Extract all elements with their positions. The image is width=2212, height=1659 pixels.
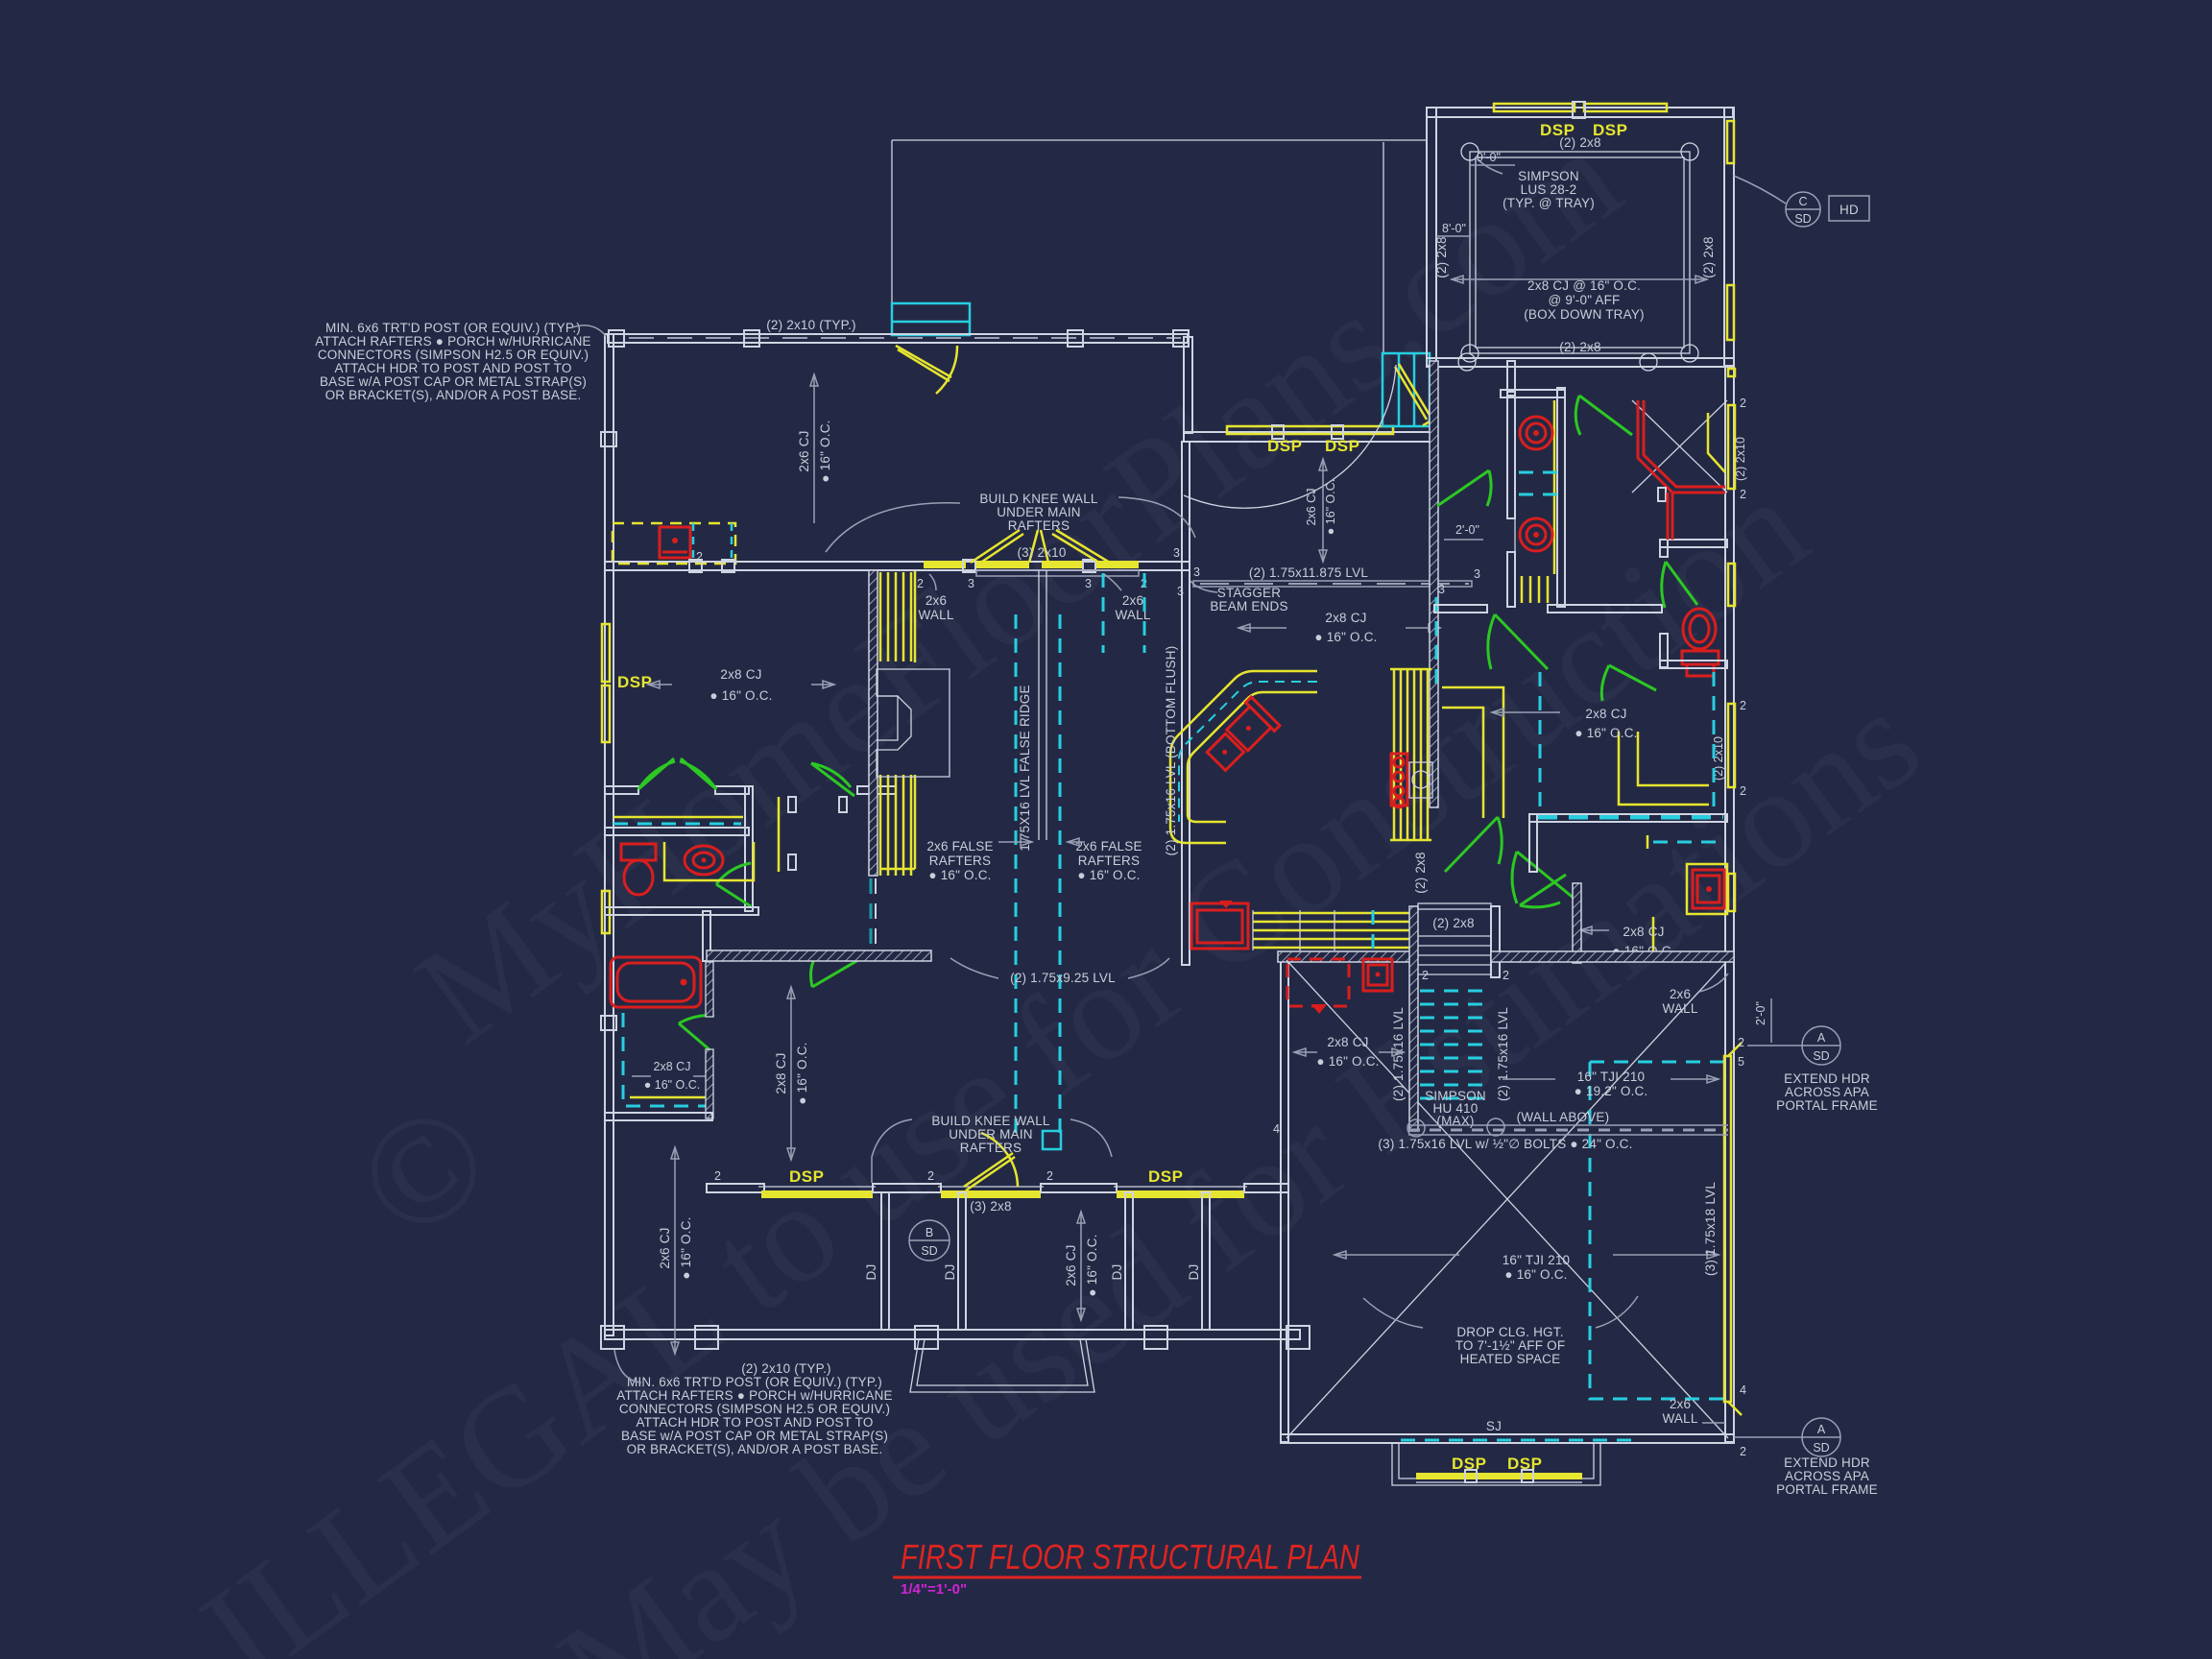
- svg-text:2x6 CJ: 2x6 CJ: [1064, 1244, 1078, 1286]
- svg-text:(2) 1.75x9.25 LVL: (2) 1.75x9.25 LVL: [1010, 971, 1116, 985]
- svg-text:CONNECTORS (SIMPSON H2.5 OR EQ: CONNECTORS (SIMPSON H2.5 OR EQUIV.): [318, 348, 589, 362]
- svg-text:DSP: DSP: [1148, 1167, 1183, 1186]
- svg-text:DSP: DSP: [1325, 437, 1359, 455]
- svg-text:UNDER MAIN: UNDER MAIN: [997, 505, 1081, 519]
- svg-text:(3) 1.75x18 LVL: (3) 1.75x18 LVL: [1703, 1182, 1718, 1276]
- svg-text:● 16" O.C.: ● 16" O.C.: [644, 1078, 701, 1092]
- svg-text:(2) 1.75x11.875 LVL: (2) 1.75x11.875 LVL: [1249, 565, 1368, 580]
- svg-text:(2) 2x8: (2) 2x8: [1413, 852, 1428, 893]
- svg-text:DSP: DSP: [789, 1167, 824, 1186]
- svg-text:2x8 CJ: 2x8 CJ: [720, 667, 761, 682]
- svg-text:3: 3: [1193, 565, 1200, 579]
- svg-text:A: A: [1817, 1423, 1826, 1436]
- svg-text:(3) 2x10: (3) 2x10: [1017, 545, 1066, 560]
- svg-text:BASE w/A POST CAP OR METAL STR: BASE w/A POST CAP OR METAL STRAP(S): [320, 374, 587, 389]
- svg-text:(2) 2x8: (2) 2x8: [1432, 916, 1474, 930]
- svg-text:(2) 1.75x16 LVL: (2) 1.75x16 LVL: [1496, 1007, 1510, 1101]
- svg-text:OR BRACKET(S), AND/OR A POST B: OR BRACKET(S), AND/OR A POST BASE.: [627, 1442, 883, 1456]
- svg-text:● 16" O.C.: ● 16" O.C.: [679, 1216, 693, 1279]
- svg-text:DJ: DJ: [1187, 1264, 1201, 1281]
- svg-text:2: 2: [714, 1169, 721, 1183]
- svg-text:FIRST FLOOR STRUCTURAL PLAN: FIRST FLOOR STRUCTURAL PLAN: [901, 1537, 1360, 1576]
- svg-text:STAGGER: STAGGER: [1217, 586, 1281, 600]
- svg-text:WALL: WALL: [918, 608, 953, 622]
- svg-text:TO 7'-1½" AFF OF: TO 7'-1½" AFF OF: [1455, 1338, 1566, 1353]
- svg-text:2: 2: [1740, 397, 1746, 410]
- svg-text:BASE w/A POST CAP OR METAL STR: BASE w/A POST CAP OR METAL STRAP(S): [621, 1429, 888, 1443]
- svg-text:● 16" O.C.: ● 16" O.C.: [818, 420, 832, 482]
- svg-text:● 16" O.C.: ● 16" O.C.: [1324, 479, 1337, 536]
- svg-text:(2) 2x10: (2) 2x10: [1734, 437, 1747, 481]
- svg-text:DJ: DJ: [943, 1264, 957, 1281]
- svg-text:2x6 FALSE: 2x6 FALSE: [926, 839, 993, 854]
- svg-text:2: 2: [927, 1169, 934, 1183]
- svg-text:OR BRACKET(S), AND/OR A POST B: OR BRACKET(S), AND/OR A POST BASE.: [325, 388, 582, 402]
- svg-text:3: 3: [1474, 567, 1480, 581]
- svg-text:2x6 FALSE: 2x6 FALSE: [1075, 839, 1142, 854]
- svg-text:WALL: WALL: [1662, 1411, 1697, 1426]
- svg-text:3: 3: [1173, 546, 1180, 560]
- svg-text:BUILD KNEE WALL: BUILD KNEE WALL: [931, 1114, 1050, 1128]
- svg-text:(2) 2x10 (TYP.): (2) 2x10 (TYP.): [741, 1361, 831, 1376]
- svg-text:A: A: [1817, 1031, 1826, 1045]
- svg-text:2x8 CJ: 2x8 CJ: [774, 1052, 788, 1094]
- svg-text:16" TJI 210: 16" TJI 210: [1503, 1253, 1571, 1267]
- svg-text:EXTEND HDR: EXTEND HDR: [1784, 1455, 1870, 1470]
- svg-text:4: 4: [1740, 1383, 1746, 1397]
- svg-text:4: 4: [1273, 1122, 1280, 1136]
- svg-text:UNDER MAIN: UNDER MAIN: [949, 1127, 1033, 1142]
- svg-text:HEATED SPACE: HEATED SPACE: [1460, 1352, 1561, 1366]
- svg-text:2x8 CJ: 2x8 CJ: [1327, 1035, 1368, 1049]
- svg-text:2x8 CJ: 2x8 CJ: [1585, 707, 1626, 721]
- svg-text:● 16" O.C.: ● 16" O.C.: [1314, 630, 1377, 644]
- svg-text:9'-0": 9'-0": [1477, 151, 1501, 164]
- svg-text:WALL: WALL: [1662, 1001, 1697, 1016]
- svg-text:2'-0": 2'-0": [1455, 523, 1479, 537]
- svg-text:LUS 28-2: LUS 28-2: [1521, 182, 1577, 197]
- svg-text:DSP: DSP: [1507, 1455, 1542, 1473]
- svg-text:3: 3: [1438, 583, 1445, 596]
- svg-text:● 16" O.C.: ● 16" O.C.: [928, 868, 991, 882]
- svg-text:BEAM ENDS: BEAM ENDS: [1210, 599, 1287, 613]
- svg-text:RAFTERS: RAFTERS: [1078, 854, 1140, 868]
- svg-text:2: 2: [1046, 1169, 1053, 1183]
- svg-text:(2) 2x8: (2) 2x8: [1559, 340, 1600, 354]
- svg-text:HD: HD: [1839, 203, 1859, 217]
- svg-text:SD: SD: [921, 1244, 937, 1258]
- svg-text:EXTEND HDR: EXTEND HDR: [1784, 1071, 1870, 1086]
- svg-text:● 16" O.C.: ● 16" O.C.: [1504, 1267, 1567, 1282]
- svg-text:RAFTERS: RAFTERS: [929, 854, 991, 868]
- svg-text:RAFTERS: RAFTERS: [960, 1141, 1022, 1155]
- svg-text:● 16" O.C.: ● 16" O.C.: [1077, 868, 1140, 882]
- svg-text:(BOX DOWN TRAY): (BOX DOWN TRAY): [1524, 307, 1645, 322]
- svg-text:1/4"=1'-0": 1/4"=1'-0": [901, 1581, 967, 1598]
- svg-text:(3) 1.75x16 LVL w/ ½"∅ BOLTS ●: (3) 1.75x16 LVL w/ ½"∅ BOLTS ● 24" O.C.: [1378, 1137, 1632, 1151]
- svg-text:2: 2: [1740, 488, 1746, 501]
- svg-text:DSP: DSP: [617, 673, 652, 691]
- svg-text:DROP CLG. HGT.: DROP CLG. HGT.: [1456, 1325, 1563, 1339]
- svg-text:2x6 CJ: 2x6 CJ: [797, 430, 811, 471]
- svg-text:2'-0": 2'-0": [1754, 1001, 1767, 1025]
- svg-text:2x6: 2x6: [926, 593, 947, 608]
- svg-text:2: 2: [1738, 1036, 1744, 1049]
- svg-text:16" TJI 210: 16" TJI 210: [1577, 1070, 1646, 1084]
- svg-text:2: 2: [1503, 969, 1509, 982]
- svg-text:(WALL ABOVE): (WALL ABOVE): [1517, 1110, 1610, 1124]
- svg-text:ATTACH HDR TO POST AND POST TO: ATTACH HDR TO POST AND POST TO: [334, 361, 571, 375]
- svg-text:MIN. 6x6 TRT'D POST (OR EQUIV.: MIN. 6x6 TRT'D POST (OR EQUIV.) (TYP.): [627, 1375, 882, 1389]
- svg-text:ACROSS APA: ACROSS APA: [1785, 1085, 1869, 1099]
- svg-text:ACROSS APA: ACROSS APA: [1785, 1469, 1869, 1483]
- svg-text:3: 3: [1177, 585, 1184, 598]
- svg-text:SD: SD: [1813, 1441, 1829, 1455]
- svg-text:● 16" O.C.: ● 16" O.C.: [795, 1042, 809, 1104]
- svg-text:SJ: SJ: [1486, 1419, 1502, 1433]
- svg-text:2: 2: [1740, 699, 1746, 712]
- svg-text:B: B: [926, 1226, 933, 1239]
- svg-text:2x6 CJ: 2x6 CJ: [1305, 489, 1318, 526]
- svg-text:(2) 2x10 (TYP.): (2) 2x10 (TYP.): [766, 318, 856, 332]
- svg-text:1.75X16 LVL FALSE RIDGE: 1.75X16 LVL FALSE RIDGE: [1018, 685, 1032, 851]
- svg-text:(2) 2x8: (2) 2x8: [1701, 236, 1716, 277]
- svg-text:2: 2: [1740, 784, 1746, 798]
- svg-text:(2) 2x8: (2) 2x8: [1559, 135, 1600, 150]
- svg-text:DJ: DJ: [1110, 1264, 1124, 1281]
- svg-text:ATTACH RAFTERS ● PORCH w/HURRI: ATTACH RAFTERS ● PORCH w/HURRICANE: [616, 1388, 892, 1403]
- svg-text:3: 3: [968, 577, 974, 590]
- svg-text:3: 3: [1085, 577, 1092, 590]
- svg-text:2x6: 2x6: [1670, 987, 1691, 1001]
- svg-text:2x6: 2x6: [1670, 1397, 1691, 1411]
- svg-text:(TYP. @ TRAY): (TYP. @ TRAY): [1503, 196, 1595, 210]
- svg-text:ATTACH HDR TO POST AND POST TO: ATTACH HDR TO POST AND POST TO: [636, 1415, 873, 1430]
- svg-text:BUILD KNEE WALL: BUILD KNEE WALL: [979, 492, 1098, 506]
- svg-text:2x8 CJ: 2x8 CJ: [1325, 611, 1366, 625]
- svg-text:2x6 CJ: 2x6 CJ: [658, 1227, 672, 1268]
- svg-text:● 16" O.C.: ● 16" O.C.: [709, 688, 772, 703]
- svg-text:(3) 2x8: (3) 2x8: [970, 1199, 1011, 1214]
- svg-text:ATTACH RAFTERS ● PORCH w/HURRI: ATTACH RAFTERS ● PORCH w/HURRICANE: [315, 334, 590, 349]
- svg-text:DSP: DSP: [1452, 1455, 1486, 1473]
- svg-text:SD: SD: [1813, 1049, 1829, 1063]
- svg-text:RAFTERS: RAFTERS: [1008, 518, 1070, 533]
- svg-text:SD: SD: [1794, 212, 1811, 226]
- svg-text:● 16" O.C.: ● 16" O.C.: [1085, 1234, 1099, 1296]
- svg-text:8'-0": 8'-0": [1442, 222, 1466, 235]
- svg-text:C: C: [1798, 195, 1807, 208]
- svg-text:PORTAL FRAME: PORTAL FRAME: [1776, 1098, 1878, 1113]
- svg-text:@ 9'-0" AFF: @ 9'-0" AFF: [1548, 293, 1620, 307]
- svg-text:DJ: DJ: [864, 1264, 878, 1281]
- svg-text:CONNECTORS (SIMPSON H2.5 OR EQ: CONNECTORS (SIMPSON H2.5 OR EQUIV.): [619, 1402, 890, 1416]
- svg-text:● 16" O.C.: ● 16" O.C.: [1316, 1054, 1379, 1069]
- svg-text:● 16" O.C.: ● 16" O.C.: [1575, 726, 1637, 740]
- svg-text:DSP: DSP: [1267, 437, 1302, 455]
- svg-text:2: 2: [917, 577, 924, 590]
- svg-text:2x8 CJ @ 16" O.C.: 2x8 CJ @ 16" O.C.: [1527, 278, 1641, 293]
- svg-text:5: 5: [1738, 1055, 1744, 1069]
- svg-text:2x8 CJ: 2x8 CJ: [1623, 925, 1664, 939]
- svg-text:PORTAL FRAME: PORTAL FRAME: [1776, 1482, 1878, 1497]
- svg-text:(2) 2x8: (2) 2x8: [1434, 236, 1449, 277]
- svg-text:● 19.2" O.C.: ● 19.2" O.C.: [1575, 1084, 1648, 1098]
- svg-text:(2) 1.75x16 LVL (BOTTOM FLUSH): (2) 1.75x16 LVL (BOTTOM FLUSH): [1164, 646, 1178, 856]
- svg-text:MIN. 6x6 TRT'D POST (OR EQUIV.: MIN. 6x6 TRT'D POST (OR EQUIV.) (TYP.): [325, 321, 581, 335]
- svg-text:2: 2: [1740, 1445, 1746, 1458]
- svg-text:2x8 CJ: 2x8 CJ: [654, 1060, 691, 1073]
- svg-text:SIMPSON: SIMPSON: [1518, 169, 1579, 183]
- svg-text:2x6: 2x6: [1122, 593, 1143, 608]
- svg-text:2: 2: [1422, 969, 1429, 982]
